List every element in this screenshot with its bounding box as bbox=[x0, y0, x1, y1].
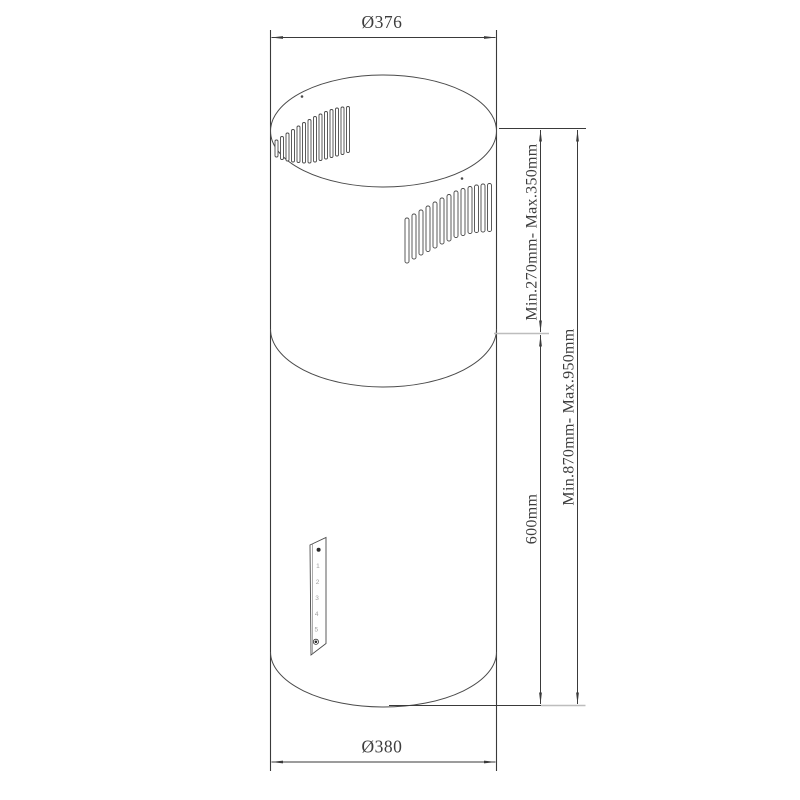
vent-slot bbox=[275, 140, 278, 157]
vent-slot bbox=[412, 214, 416, 259]
vent-slot bbox=[292, 130, 295, 163]
vent-slot bbox=[308, 120, 311, 164]
rivet-dot-icon bbox=[461, 177, 464, 180]
chimney-height-label: Min.270mm- Max.350mm bbox=[524, 143, 541, 320]
vent-slot bbox=[488, 184, 492, 232]
vent-slot bbox=[286, 133, 289, 161]
vent-slot bbox=[481, 184, 485, 232]
rivet-dot-icon bbox=[301, 95, 304, 98]
speed-label-5: 5 bbox=[314, 627, 318, 634]
vent-slot bbox=[447, 195, 451, 242]
vent-slot bbox=[341, 107, 344, 155]
chimney-body-junction-arc bbox=[271, 329, 497, 387]
body-height-label: 600mm bbox=[524, 494, 541, 545]
speed-label-2: 2 bbox=[316, 579, 320, 586]
speed-label-4: 4 bbox=[315, 611, 319, 618]
speed-label-3: 3 bbox=[315, 595, 319, 602]
light-button-icon bbox=[315, 641, 318, 644]
vent-slot bbox=[440, 198, 444, 244]
control-panel: 1 2 3 4 5 bbox=[310, 538, 326, 656]
vent-slot bbox=[281, 137, 284, 160]
vent-slot bbox=[468, 187, 472, 234]
vent-slot bbox=[303, 123, 306, 164]
bottom-rim-arc bbox=[271, 652, 497, 707]
vent-slot bbox=[454, 191, 458, 238]
vent-slot bbox=[419, 210, 423, 255]
vent-slot bbox=[426, 206, 430, 252]
top-diameter-label: Ø376 bbox=[362, 12, 403, 32]
vent-slot bbox=[405, 218, 409, 263]
vent-slot bbox=[319, 114, 322, 161]
vent-slot bbox=[330, 110, 333, 158]
total-height-label: Min.870mm- Max.950mm bbox=[561, 328, 578, 505]
vent-slot bbox=[325, 112, 328, 160]
vent-slot bbox=[461, 189, 465, 236]
vent-slot bbox=[475, 185, 479, 233]
vent-slot bbox=[433, 202, 437, 248]
speed-label-1: 1 bbox=[316, 563, 320, 570]
power-dot-icon bbox=[317, 548, 321, 552]
bottom-diameter-label: Ø380 bbox=[362, 737, 403, 757]
vent-slot bbox=[347, 107, 350, 153]
cooker-hood-dimension-diagram: 1 2 3 4 5 Ø376 Ø380 Min.270mm- Max.350mm… bbox=[0, 0, 800, 800]
vent-slot bbox=[336, 108, 339, 156]
vent-slot bbox=[297, 126, 300, 163]
top-vent-slots bbox=[275, 107, 350, 164]
diagram-svg: 1 2 3 4 5 Ø376 Ø380 Min.270mm- Max.350mm… bbox=[0, 0, 800, 800]
side-vent-slots bbox=[405, 184, 492, 264]
vent-slot bbox=[314, 117, 317, 163]
